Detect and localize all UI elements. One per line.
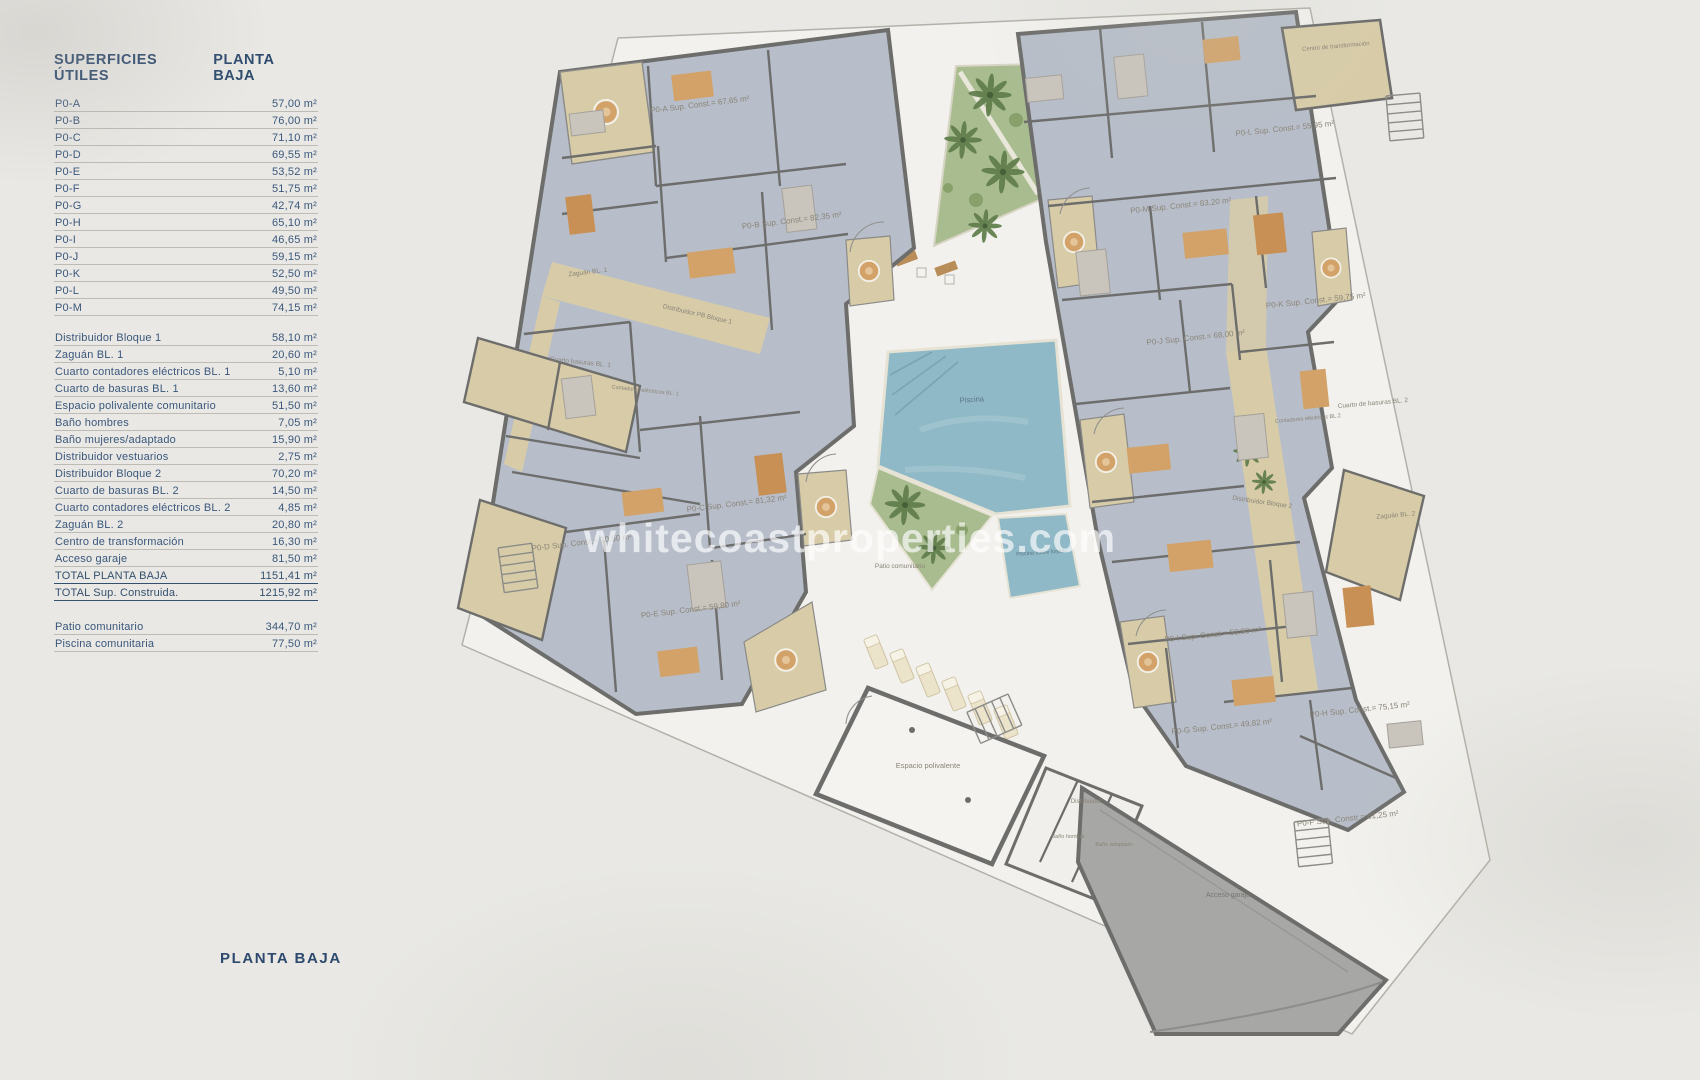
table-title: SUPERFICIES ÚTILES	[54, 52, 213, 84]
table-row: P0-E53,52 m²	[54, 163, 318, 180]
table-row: P0-B76,00 m²	[54, 112, 318, 129]
table-row: Espacio polivalente comunitario51,50 m²	[54, 397, 318, 414]
table-row: Distribuidor Bloque 158,10 m²	[54, 329, 318, 346]
table-row: Piscina comunitaria77,50 m²	[54, 635, 318, 652]
table-row: Distribuidor Bloque 270,20 m²	[54, 465, 318, 482]
room-label: Distribuidor	[1071, 799, 1101, 805]
table-row: P0-K52,50 m²	[54, 265, 318, 282]
table-row: P0-A57,00 m²	[54, 95, 318, 112]
table-row: P0-G42,74 m²	[54, 197, 318, 214]
table-row: P0-F51,75 m²	[54, 180, 318, 197]
common-rows: Distribuidor Bloque 158,10 m² Zaguán BL.…	[54, 329, 318, 601]
table-row: P0-D69,55 m²	[54, 146, 318, 163]
table-row: P0-J59,15 m²	[54, 248, 318, 265]
table-row: Zaguán BL. 220,80 m²	[54, 516, 318, 533]
table-row: Cuarto de basuras BL. 214,50 m²	[54, 482, 318, 499]
room-label: Espacio polivalente	[896, 761, 961, 770]
table-row: Cuarto contadores eléctricos BL. 24,85 m…	[54, 499, 318, 516]
surface-table: SUPERFICIES ÚTILES PLANTA BAJA P0-A57,00…	[54, 52, 318, 652]
pool-label: Piscina	[959, 394, 985, 405]
table-row: Centro de transformación16,30 m²	[54, 533, 318, 550]
table-row: P0-I46,65 m²	[54, 231, 318, 248]
table-row: P0-C71,10 m²	[54, 129, 318, 146]
table-row: P0-M74,15 m²	[54, 299, 318, 316]
table-row: Patio comunitario344,70 m²	[54, 618, 318, 635]
room-label: Baño hombre	[1051, 834, 1084, 840]
table-row-total: TOTAL PLANTA BAJA1151,41 m²	[54, 567, 318, 584]
table-row-total: TOTAL Sup. Construida.1215,92 m²	[54, 584, 318, 601]
table-row: Baño mujeres/adaptado15,90 m²	[54, 431, 318, 448]
table-row: Zaguán BL. 120,60 m²	[54, 346, 318, 363]
room-label: Acceso garaje	[1206, 892, 1250, 899]
table-row: Cuarto contadores eléctricos BL. 15,10 m…	[54, 363, 318, 380]
table-header: SUPERFICIES ÚTILES PLANTA BAJA	[54, 52, 318, 84]
table-row: Baño hombres7,05 m²	[54, 414, 318, 431]
extra-rows: Patio comunitario344,70 m² Piscina comun…	[54, 618, 318, 652]
table-row: Distribuidor vestuarios2,75 m²	[54, 448, 318, 465]
table-subtitle: PLANTA BAJA	[213, 52, 318, 84]
patio-label: Patio comunitario	[875, 563, 926, 570]
room-label: Baño adaptado	[1095, 842, 1132, 848]
floor-title: PLANTA BAJA	[220, 950, 342, 967]
table-row: Acceso garaje81,50 m²	[54, 550, 318, 567]
table-row: P0-L49,50 m²	[54, 282, 318, 299]
unit-rows: P0-A57,00 m² P0-B76,00 m² P0-C71,10 m² P…	[54, 95, 318, 316]
table-row: Cuarto de basuras BL. 113,60 m²	[54, 380, 318, 397]
watermark-text: whitecoastproperties.com	[583, 515, 1116, 561]
table-row: P0-H65,10 m²	[54, 214, 318, 231]
